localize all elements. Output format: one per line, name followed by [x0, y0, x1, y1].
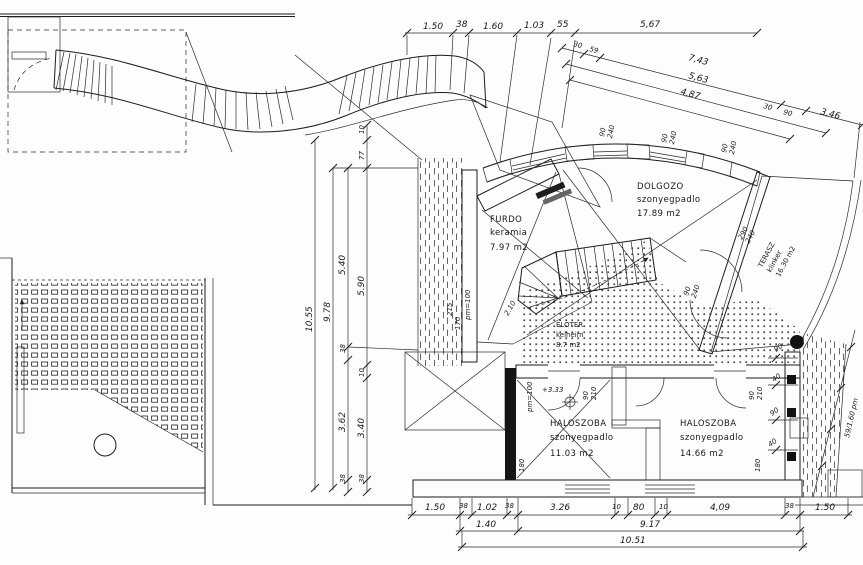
dim-label: 1.60	[483, 22, 503, 32]
terrace-label: TERASZ klinker 16.30 m2	[756, 236, 797, 280]
dim-label: 90	[748, 391, 756, 400]
dim-label: 170	[454, 316, 462, 330]
paved-terrace	[0, 258, 412, 505]
walkway	[54, 50, 488, 135]
dim-label: 10	[358, 125, 366, 134]
dim-label: 215	[446, 302, 454, 316]
room-area: 8.7 m2	[556, 341, 581, 349]
door-swing-bedroom2	[716, 378, 746, 408]
room-name: HALOSZOBA	[680, 419, 736, 429]
slope-planting-west	[418, 158, 462, 366]
dim-label: 3.26	[550, 503, 570, 513]
room-name: ELOTER	[556, 321, 583, 329]
dim-label: 59	[588, 45, 599, 55]
room-name: FURDO	[490, 215, 522, 225]
entry-steps	[535, 180, 572, 206]
walkway-steps-group-b	[192, 84, 293, 130]
dim-label: 240	[690, 283, 702, 299]
floor-plan-drawing: FURDO keramia 7.97 m2 DOLGOZO szonyegpad…	[0, 0, 863, 565]
dim-label: 1.50	[815, 503, 835, 513]
room-name: DOLGOZO	[637, 182, 684, 192]
floor-plan-page: FURDO keramia 7.97 m2 DOLGOZO szonyegpad…	[0, 0, 863, 565]
room-floor: kelheim	[556, 331, 584, 339]
wall-bedroom1-west	[505, 368, 516, 480]
paved-terrace-drain	[94, 434, 116, 456]
dim-label: 10	[659, 503, 668, 511]
dim-label: 1.40	[476, 520, 496, 530]
room-floor: szonyegpadlo	[680, 433, 744, 443]
dim-label: 90	[769, 406, 781, 418]
dim-label: 30	[762, 102, 773, 112]
dim-label: 38	[358, 474, 366, 483]
wall-partition-upper	[612, 367, 626, 425]
walkway-steps-group-a	[56, 52, 112, 105]
room-floor: szonyegpadlo	[637, 195, 701, 205]
dim-label: 38	[456, 20, 468, 30]
dim-label: 4,09	[710, 503, 730, 513]
dim-label: 180	[518, 458, 526, 472]
dim-label: pm=100	[526, 381, 534, 413]
dim-label: 40	[771, 372, 783, 384]
dim-label: 40	[767, 437, 779, 449]
dim-label: 240	[668, 130, 679, 145]
dim-label: 5,63	[687, 71, 709, 86]
dim-label: 38	[785, 502, 794, 510]
wall-west	[462, 170, 477, 362]
dim-label: 240	[606, 124, 617, 139]
dimension-chain-bottom: 1.50 38 1.02 38 3.26 10 80 10 4,09 38 1.…	[408, 498, 852, 551]
dim-label: 38	[339, 344, 347, 353]
level-marker-icon	[562, 394, 578, 410]
dim-label: 1.03	[524, 21, 544, 31]
room-area: 17.89 m2	[637, 209, 681, 219]
dim-label: 10.51	[620, 536, 646, 546]
room-area: 11.03 m2	[550, 449, 594, 459]
door-swing-bedroom1	[548, 378, 580, 410]
dim-label: 1.50	[425, 503, 445, 513]
dim-label: 9.78	[323, 302, 333, 322]
dim-label: 240	[728, 140, 739, 155]
dim-label: 10.55	[305, 306, 315, 332]
room-name: HALOSZOBA	[550, 419, 606, 429]
room-area: 14.66 m2	[680, 449, 724, 459]
dim-label: 7,43	[687, 53, 709, 68]
room-floor: keramia	[490, 228, 527, 238]
dim-label: 5,67	[640, 20, 660, 30]
dim-label: 30	[572, 40, 583, 50]
wall-partition-jog	[612, 420, 660, 428]
dim-label: 3,46	[819, 107, 841, 122]
dimension-chain-left: 10.55 9.78 5.40 38 3.62 38 10 77 5.90 10…	[305, 121, 418, 496]
dim-label: 59/1.60 pm	[843, 397, 860, 438]
dim-label: 5.40	[338, 255, 348, 275]
dim-label: 9.17	[640, 520, 660, 530]
dim-label: 5.90	[357, 276, 367, 296]
dim-label: 90	[582, 391, 590, 400]
dim-label: pm=100	[464, 289, 472, 321]
slope-planting-east	[800, 332, 846, 497]
dim-label: 38	[459, 502, 468, 510]
dim-label: 4,87	[679, 87, 701, 102]
dim-label: 90	[782, 108, 793, 118]
dim-label: 3.62	[338, 412, 348, 432]
dim-label: 80	[633, 503, 645, 513]
dim-label: 3.40	[357, 418, 367, 438]
dim-label: 210	[590, 386, 598, 400]
dim-label: 1.50	[423, 22, 443, 32]
room-area: 7.97 m2	[490, 243, 528, 253]
dim-label: 10	[358, 368, 366, 377]
room-floor: szonyegpadlo	[550, 433, 614, 443]
dim-label: 2.10	[503, 299, 518, 317]
dim-label: 180	[754, 458, 762, 472]
dim-label: 210	[756, 386, 764, 400]
walkway-steps-group-c	[339, 55, 436, 114]
dim-label: 55	[557, 20, 569, 30]
dimension-chain-diagonal: 30 59 7,43 5,63 4,87 30 90 3,46	[558, 40, 863, 178]
dim-label: 38	[339, 474, 347, 483]
wall-partition-lower	[646, 428, 660, 480]
dim-label: 1.02	[477, 503, 497, 513]
door-swing-terrace	[700, 250, 742, 292]
dim-label: 77	[358, 151, 366, 160]
dim-label: 10	[612, 503, 621, 511]
dim-label: 38	[505, 502, 514, 510]
level-label: +3.33	[542, 386, 563, 394]
